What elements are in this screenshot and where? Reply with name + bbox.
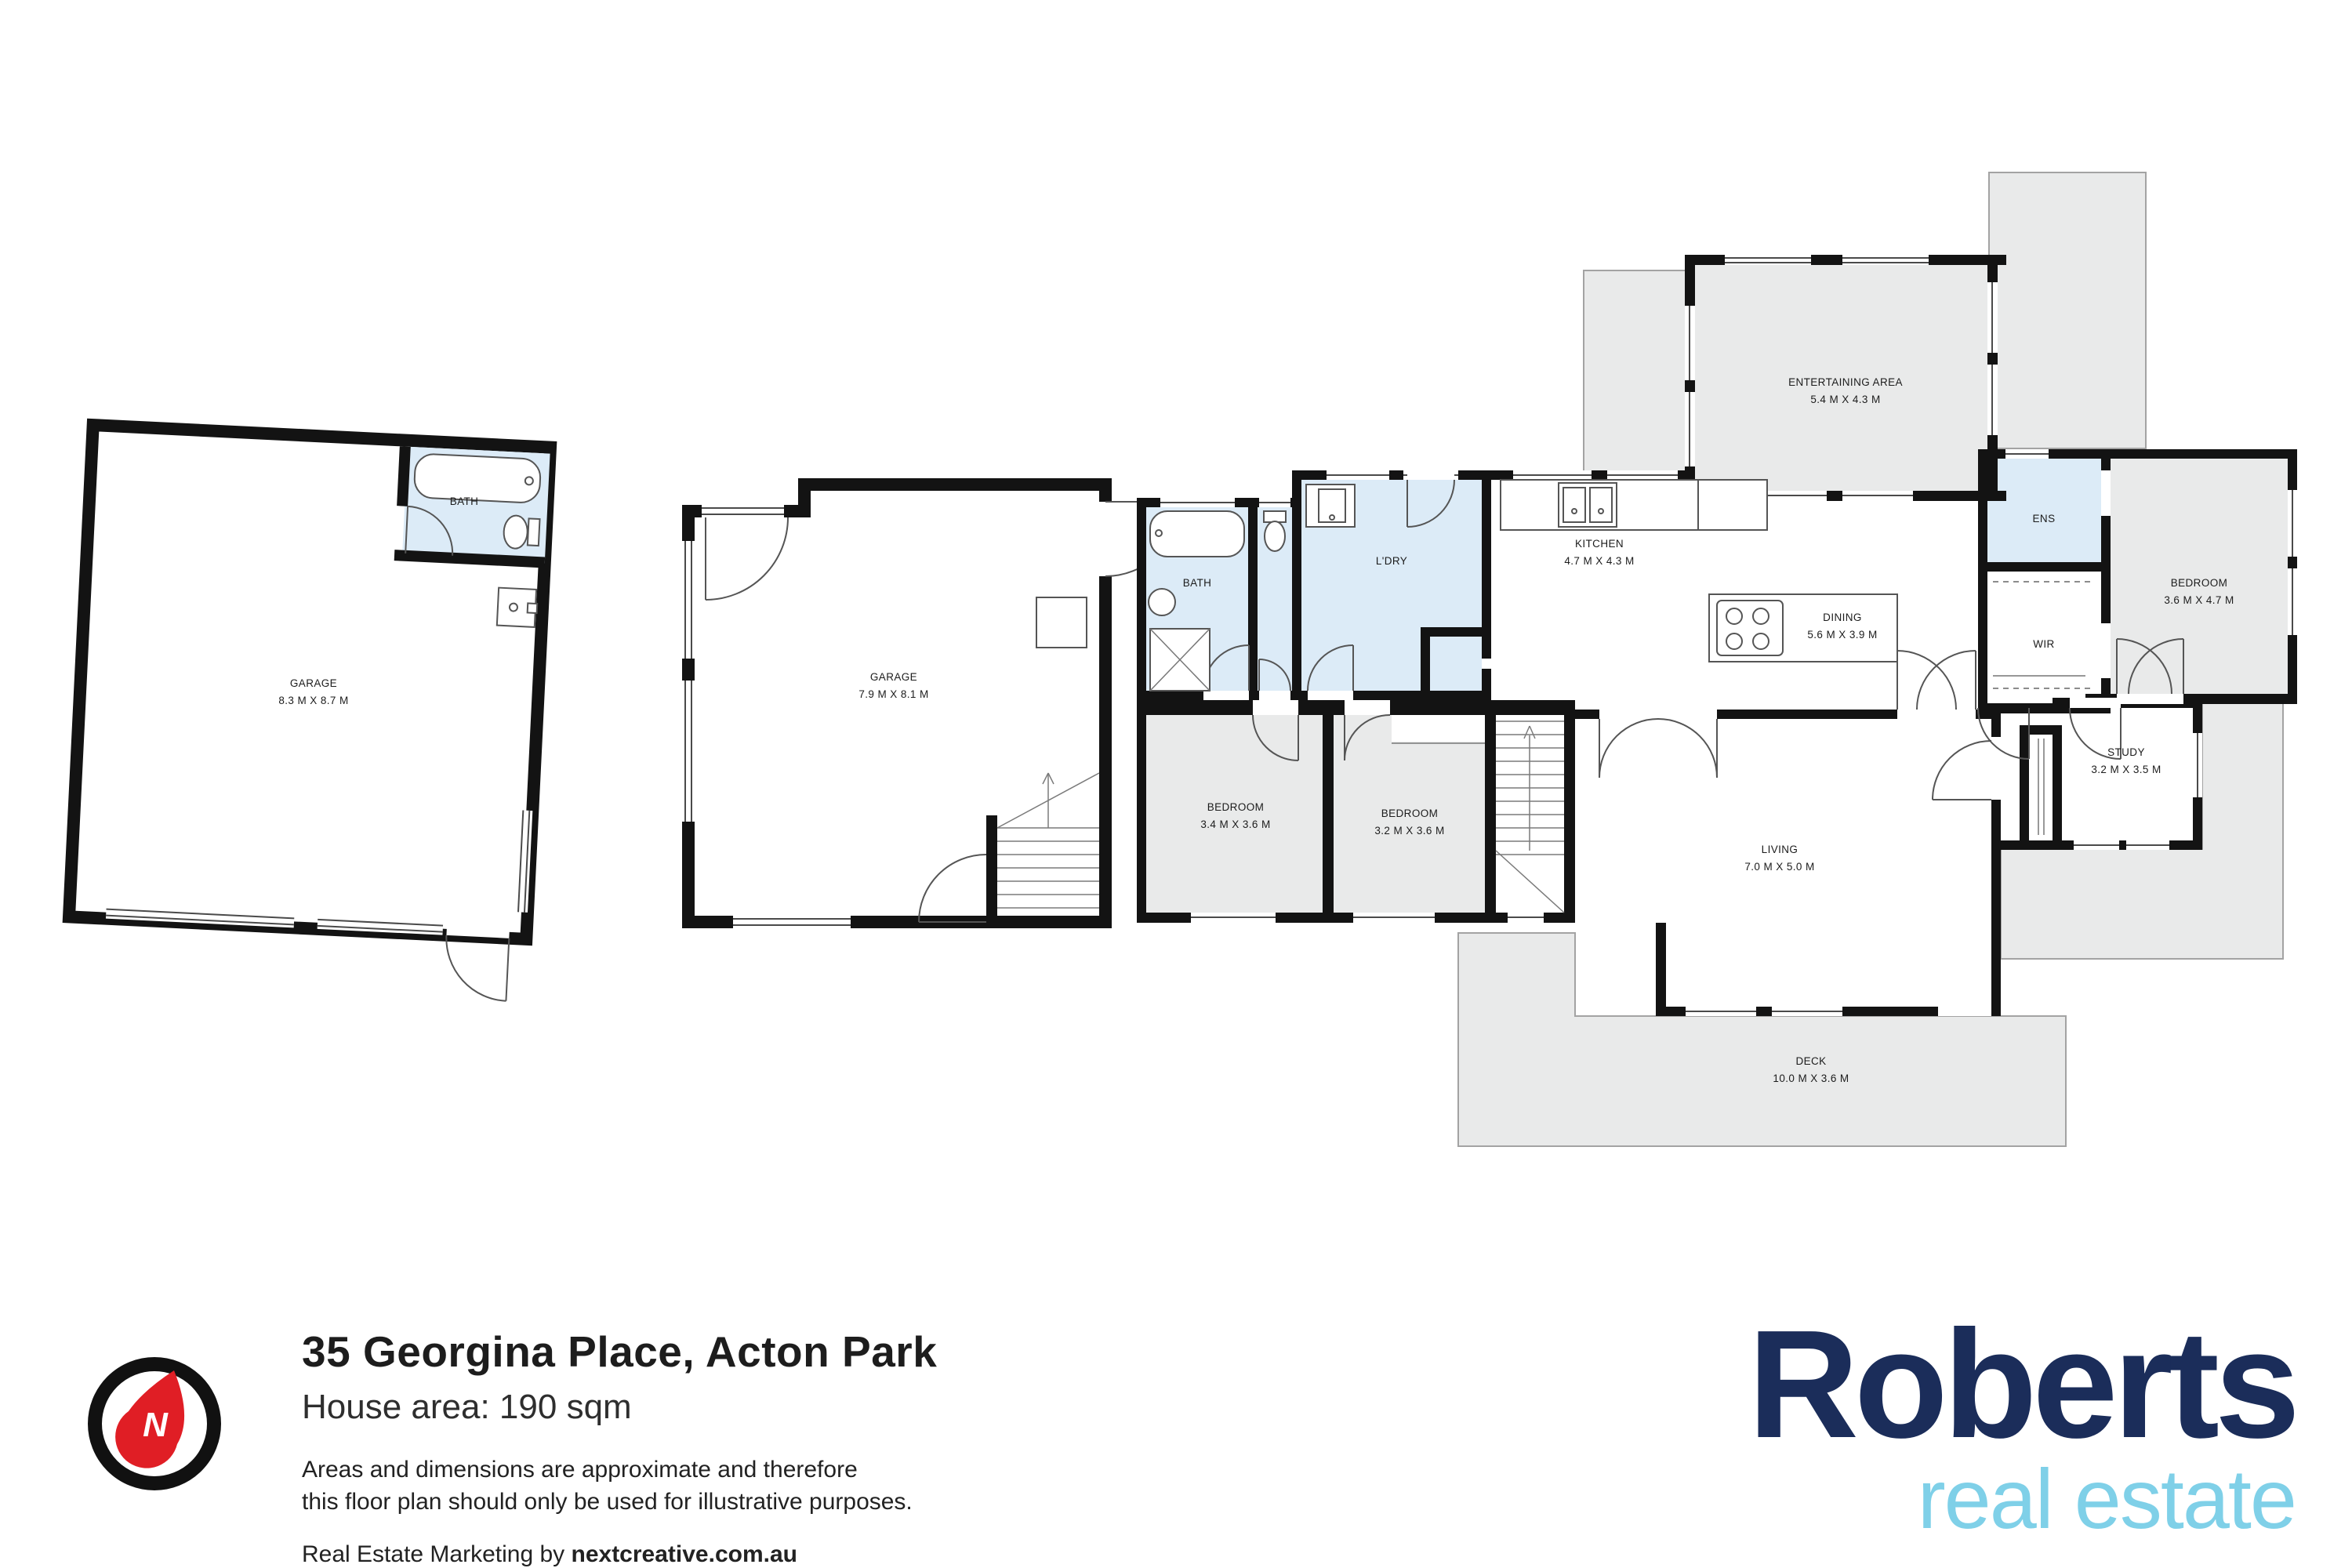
room-label-bedroom-3: BEDROOM xyxy=(1381,808,1439,819)
ens-floor xyxy=(1987,459,2101,562)
room-label-bedroom-2: BEDROOM xyxy=(1207,801,1265,813)
laundry-sink-icon xyxy=(1306,485,1355,527)
robe-recess xyxy=(1392,715,1485,742)
room-dims-dining: 5.6 M X 3.9 M xyxy=(1807,629,1877,641)
bedroom-main-floor xyxy=(2111,459,2288,694)
disclaimer-line1: Areas and dimensions are approximate and… xyxy=(302,1457,858,1483)
bedroom2-floor xyxy=(1146,715,1323,913)
shower-icon xyxy=(1150,629,1210,691)
marketing-prefix: Real Estate Marketing by xyxy=(302,1541,572,1567)
room-label-wir: WIR xyxy=(2033,638,2054,650)
closet-sliding-door xyxy=(2038,739,2044,835)
bathtub-icon xyxy=(1150,511,1244,557)
floorplan-drawing: GARAGE 8.3 M X 8.7 M BATH xyxy=(0,0,2352,1301)
room-dims-garage-left: 8.3 M X 8.7 M xyxy=(278,695,348,706)
garage-left-plan xyxy=(66,425,550,1002)
room-dims-bedroom-main: 3.6 M X 4.7 M xyxy=(2164,594,2234,606)
room-label-laundry: L'DRY xyxy=(1376,555,1407,567)
room-label-bath: BATH xyxy=(1183,577,1212,589)
room-dims-kitchen: 4.7 M X 4.3 M xyxy=(1564,555,1634,567)
room-label-kitchen: KITCHEN xyxy=(1575,538,1624,550)
room-dims-bedroom-3: 3.2 M X 3.6 M xyxy=(1374,825,1444,837)
room-label-garage-left: GARAGE xyxy=(290,677,337,689)
entry-door xyxy=(444,923,510,1001)
basin-icon xyxy=(1149,589,1175,615)
logo-brand: Roberts xyxy=(1748,1308,2296,1461)
stove-icon xyxy=(1717,601,1783,655)
toilet-icon xyxy=(1264,511,1286,551)
room-label-living: LIVING xyxy=(1762,844,1798,855)
room-label-study: STUDY xyxy=(2107,746,2145,758)
page-title: 35 Georgina Place, Acton Park xyxy=(302,1327,937,1377)
compass-north-label: N xyxy=(143,1406,169,1444)
room-dims-entertaining: 5.4 M X 4.3 M xyxy=(1810,394,1880,405)
room-dims-study: 3.2 M X 3.5 M xyxy=(2091,764,2161,775)
house-area: House area: 190 sqm xyxy=(302,1388,937,1427)
patio-strip xyxy=(1989,172,2146,448)
main-house-plan xyxy=(1137,172,2297,1146)
kitchen-fixtures xyxy=(1421,480,1897,691)
bathtub-tap-icon xyxy=(525,477,533,485)
disclaimer-line2: this floor plan should only be used for … xyxy=(302,1489,913,1515)
agency-logo: Roberts real estate xyxy=(1748,1308,2296,1541)
kitchen-sink-icon xyxy=(1559,483,1617,527)
room-label-deck: DECK xyxy=(1795,1055,1826,1067)
room-label-dining: DINING xyxy=(1823,612,1862,623)
info-block: 35 Georgina Place, Acton Park House area… xyxy=(302,1327,937,1568)
room-dims-bedroom-2: 3.4 M X 3.6 M xyxy=(1200,818,1270,830)
marketing-credit: Real Estate Marketing by nextcreative.co… xyxy=(302,1541,937,1568)
wir-shelves xyxy=(1993,582,2095,688)
deck-area xyxy=(1458,933,2066,1146)
room-dims-deck: 10.0 M X 3.6 M xyxy=(1773,1073,1849,1084)
garage-right-plan xyxy=(682,485,1180,928)
stairs xyxy=(1496,721,1564,913)
room-dims-living: 7.0 M X 5.0 M xyxy=(1744,861,1814,873)
room-label-garage-right: GARAGE xyxy=(870,671,917,683)
disclaimer: Areas and dimensions are approximate and… xyxy=(302,1454,937,1518)
room-label-garage-left-bath: BATH xyxy=(450,495,479,507)
floorplan-page: GARAGE 8.3 M X 8.7 M BATH xyxy=(0,0,2352,1568)
room-dims-garage-right: 7.9 M X 8.1 M xyxy=(858,688,928,700)
toilet-icon xyxy=(503,515,540,550)
appliance-icon xyxy=(1036,597,1087,648)
garage-right-walls xyxy=(688,485,1105,922)
marketing-domain: nextcreative.com.au xyxy=(572,1541,797,1567)
room-label-ens: ENS xyxy=(2033,513,2056,524)
room-label-bedroom-main: BEDROOM xyxy=(2171,577,2228,589)
room-label-entertaining: ENTERTAINING AREA xyxy=(1788,376,1903,388)
sink-icon xyxy=(497,588,538,627)
